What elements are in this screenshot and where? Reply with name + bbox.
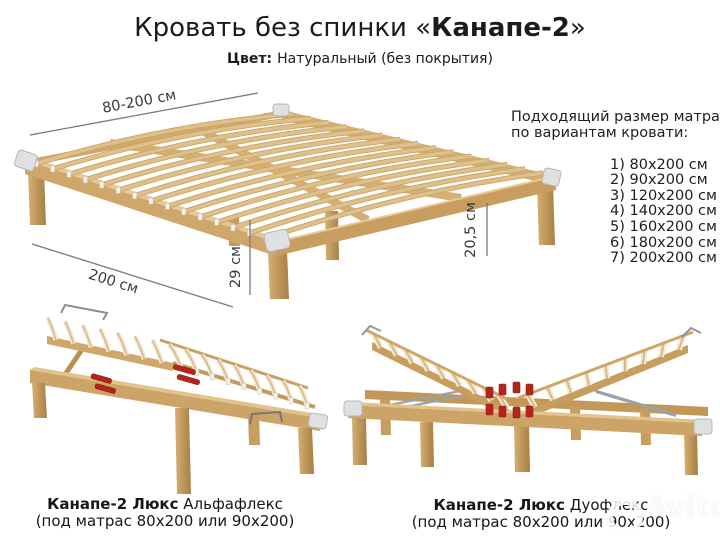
corner-bracket xyxy=(694,419,712,434)
dimension-line-length xyxy=(32,244,233,307)
variant-caption-alfaflex: Канапе-2 Люкс Альфафлекс (под матрас 80x… xyxy=(20,496,310,529)
slat-holder xyxy=(116,187,120,193)
slat-holder xyxy=(210,374,214,380)
title-model-name: Канапе-2 xyxy=(431,13,570,43)
corner-bracket xyxy=(14,149,38,171)
red-adjuster xyxy=(486,387,493,398)
variant-caption-duoflex: Канапе-2 Люкс Дуофлекс (под матрас 80x20… xyxy=(394,497,688,530)
slat-holder xyxy=(165,203,169,209)
dim-leg-height-label: 29 см xyxy=(228,246,244,288)
mattress-size-item: 5) 160x200 см xyxy=(610,220,720,236)
right-plane-rail xyxy=(518,332,693,398)
corner-bracket xyxy=(344,401,362,416)
slat-holder xyxy=(258,388,262,394)
mattress-size-list: 1) 80x200 см 2) 90x200 см 3) 120x200 см … xyxy=(511,158,720,267)
mattress-size-item: 6) 180x200 см xyxy=(610,236,720,252)
lounger-leg xyxy=(32,383,47,418)
duoflex-illustration xyxy=(340,315,720,480)
slat-holder xyxy=(274,393,278,399)
right-plane-slats xyxy=(528,336,684,408)
slat-holder xyxy=(289,398,293,404)
duoflex-leg xyxy=(420,422,434,467)
mattress-size-item: 2) 90x200 см xyxy=(610,173,720,189)
page-title: Кровать без спинки «Канапе-2» xyxy=(0,13,720,43)
red-adjuster xyxy=(499,406,506,417)
variant-name-line: Канапе-2 Люкс Альфафлекс xyxy=(20,496,310,513)
variant-note: (под матрас 80x200 или 90x200) xyxy=(394,514,688,531)
head-handle xyxy=(61,305,107,320)
variant-model: Альфафлекс xyxy=(183,495,283,513)
red-adjuster xyxy=(486,404,493,415)
slat-holder xyxy=(226,379,230,385)
lounger-leg xyxy=(175,408,191,494)
red-adjuster xyxy=(526,384,533,395)
variant-note: (под матрас 80x200 или 90x200) xyxy=(20,513,310,530)
alfaflex-illustration xyxy=(5,300,335,496)
red-adjuster xyxy=(177,374,200,385)
red-adjuster xyxy=(513,382,520,393)
slat-holder xyxy=(305,403,309,409)
slat-holder xyxy=(149,198,153,204)
slat-holder xyxy=(215,219,219,225)
red-adjuster xyxy=(526,406,533,417)
color-label: Цвет: xyxy=(227,51,272,67)
variant-model: Дуофлекс xyxy=(570,496,649,514)
variant-name: Канапе-2 Люкс xyxy=(434,496,565,514)
main-bed-illustration: 80-200 см 200 см 29 см 20,5 см xyxy=(0,85,580,315)
slat-holder xyxy=(67,171,71,177)
mattress-heading-line1: Подходящий размер матраса xyxy=(511,110,720,126)
lounger-leg xyxy=(298,428,314,474)
color-subtitle: Цвет:Натуральный (без покрытия) xyxy=(0,51,720,67)
mattress-size-item: 4) 140x200 см xyxy=(610,204,720,220)
dim-width-label: 80-200 см xyxy=(101,87,178,116)
bed-leg xyxy=(268,250,289,299)
duoflex-leg xyxy=(352,418,367,465)
title-suffix: » xyxy=(570,13,586,43)
red-adjuster xyxy=(499,384,506,395)
slat-holder xyxy=(51,166,55,172)
slat-holder xyxy=(182,209,186,215)
dim-clearance-label: 20,5 см xyxy=(463,202,479,258)
duoflex-leg xyxy=(684,432,698,475)
slat-holder xyxy=(231,225,235,231)
title-prefix: Кровать без спинки « xyxy=(134,13,431,43)
mattress-heading-line2: по вариантам кровати: xyxy=(511,126,720,142)
color-value: Натуральный (без покрытия) xyxy=(277,51,493,67)
slat-holder xyxy=(133,193,137,199)
duoflex-leg xyxy=(514,425,530,472)
slat-holder xyxy=(100,182,104,188)
red-adjuster xyxy=(513,407,520,418)
mattress-sizes-panel: Подходящий размер матраса по вариантам к… xyxy=(511,110,720,267)
corner-bracket xyxy=(273,104,289,116)
mattress-size-item: 1) 80x200 см xyxy=(610,158,720,174)
slat-holder xyxy=(198,214,202,220)
mattress-size-item: 7) 200x200 см xyxy=(610,251,720,267)
variant-name: Канапе-2 Люкс xyxy=(47,495,178,513)
product-image: Кровать без спинки «Канапе-2» Цвет:Натур… xyxy=(0,0,720,540)
slat-holder xyxy=(83,177,87,183)
slat-holder xyxy=(242,384,246,390)
dim-length-label: 200 см xyxy=(86,267,140,298)
variant-name-line: Канапе-2 Люкс Дуофлекс xyxy=(394,497,688,514)
corner-bracket xyxy=(308,413,328,430)
mattress-size-item: 3) 120x200 см xyxy=(610,189,720,205)
lounger-leg xyxy=(248,414,260,445)
